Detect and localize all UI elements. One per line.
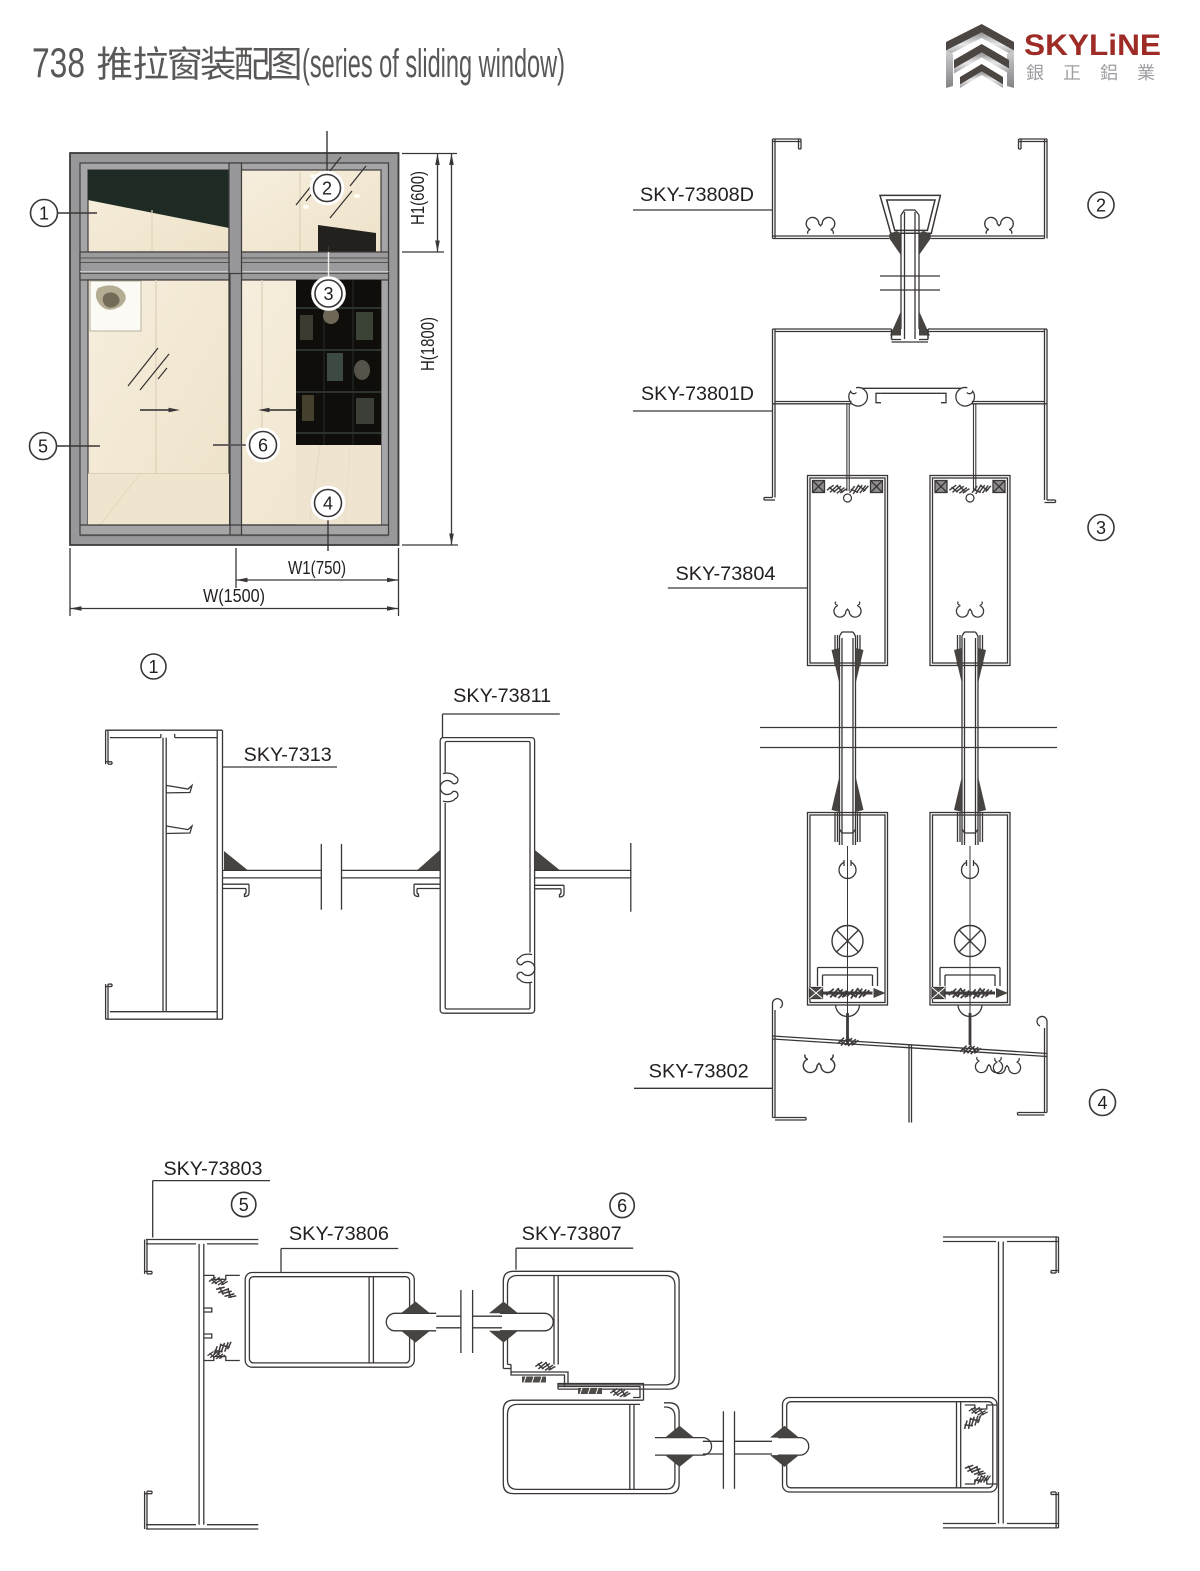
svg-text:W1(750): W1(750) bbox=[288, 558, 346, 578]
svg-text:SKY-73804: SKY-73804 bbox=[676, 564, 776, 585]
svg-text:5: 5 bbox=[38, 436, 48, 456]
svg-text:SKY-73806: SKY-73806 bbox=[289, 1224, 389, 1245]
svg-text:5: 5 bbox=[239, 1195, 249, 1215]
svg-text:2: 2 bbox=[322, 178, 332, 198]
svg-text:4: 4 bbox=[1097, 1093, 1107, 1113]
svg-text:SKY-7313: SKY-7313 bbox=[244, 745, 332, 766]
svg-text:(series of sliding window): (series of sliding window) bbox=[302, 42, 565, 86]
svg-text:4: 4 bbox=[323, 493, 333, 513]
svg-text:H(1800): H(1800) bbox=[418, 317, 438, 371]
svg-text:SKY-73811: SKY-73811 bbox=[453, 686, 551, 707]
svg-text:SKY-73808D: SKY-73808D bbox=[640, 185, 754, 206]
svg-text:H1(600): H1(600) bbox=[408, 171, 428, 225]
svg-text:1: 1 bbox=[148, 657, 158, 677]
svg-text:SKY-73802: SKY-73802 bbox=[649, 1062, 749, 1083]
svg-text:SKY-73803: SKY-73803 bbox=[164, 1159, 263, 1180]
svg-text:SKYLiNE: SKYLiNE bbox=[1024, 29, 1161, 62]
svg-text:6: 6 bbox=[258, 435, 268, 455]
svg-text:738: 738 bbox=[32, 39, 85, 86]
svg-text:6: 6 bbox=[617, 1196, 627, 1216]
svg-text:SKY-73801D: SKY-73801D bbox=[641, 384, 754, 405]
svg-text:3: 3 bbox=[323, 284, 333, 304]
svg-text:SKY-73807: SKY-73807 bbox=[522, 1224, 622, 1245]
svg-text:W(1500): W(1500) bbox=[203, 586, 265, 606]
svg-text:2: 2 bbox=[1096, 195, 1106, 215]
svg-text:3: 3 bbox=[1096, 518, 1106, 538]
svg-text:1: 1 bbox=[39, 203, 49, 223]
